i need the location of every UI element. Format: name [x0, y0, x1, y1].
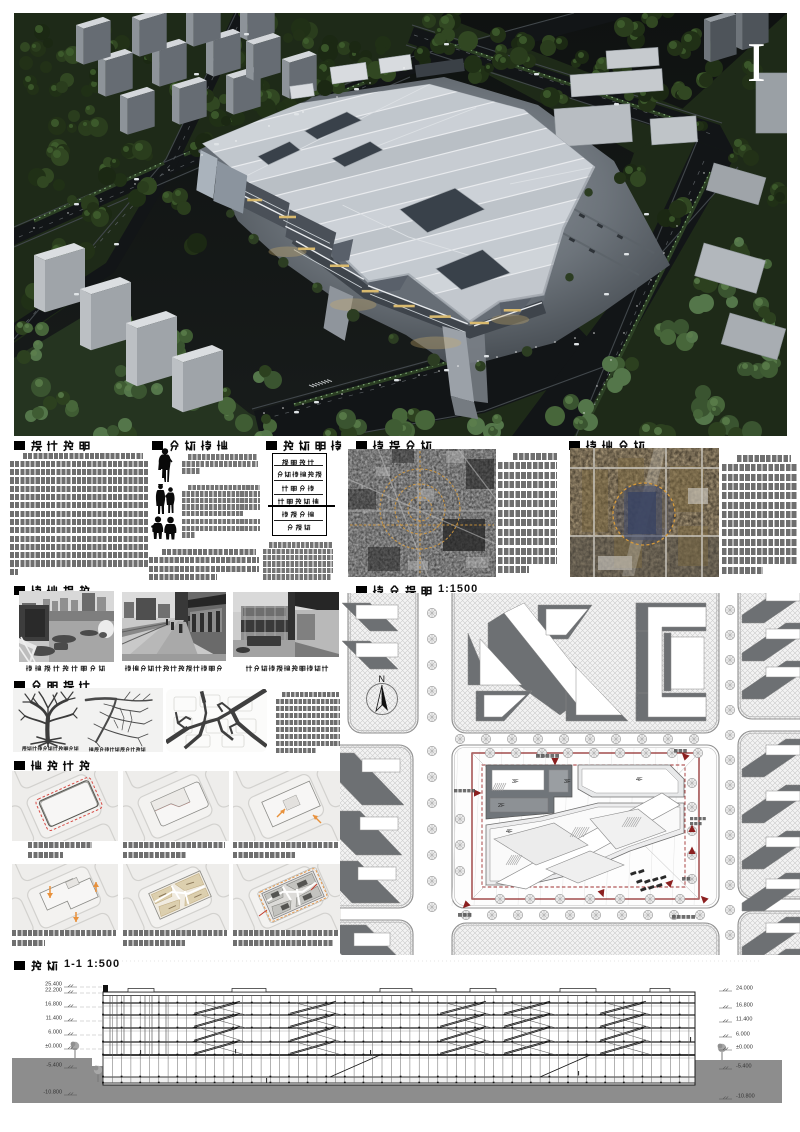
svg-text:±0.000: ±0.000 [45, 1044, 62, 1050]
svg-text:6.000: 6.000 [736, 1032, 750, 1038]
svg-text:22.200: 22.200 [45, 988, 62, 994]
svg-text:-10.800: -10.800 [43, 1090, 62, 1096]
svg-text:3F: 3F [512, 779, 519, 785]
svg-text:4F: 4F [636, 777, 643, 783]
svg-text:6.000: 6.000 [48, 1030, 62, 1036]
svg-text:4F: 4F [506, 829, 513, 835]
svg-text:±0.000: ±0.000 [736, 1045, 753, 1051]
svg-text:N: N [379, 674, 386, 684]
svg-text:I: I [747, 32, 766, 94]
svg-text:16.800: 16.800 [736, 1003, 753, 1009]
svg-text:-10.800: -10.800 [736, 1094, 755, 1100]
svg-text:24.000: 24.000 [736, 986, 753, 992]
svg-text:11.400: 11.400 [736, 1017, 752, 1023]
svg-text:2F: 2F [498, 803, 505, 809]
svg-text:-5.400: -5.400 [46, 1063, 62, 1069]
svg-text:11.400: 11.400 [46, 1016, 62, 1022]
svg-text:-5.400: -5.400 [736, 1064, 752, 1070]
svg-text:16.800: 16.800 [45, 1002, 62, 1008]
svg-text:3F: 3F [564, 779, 571, 785]
